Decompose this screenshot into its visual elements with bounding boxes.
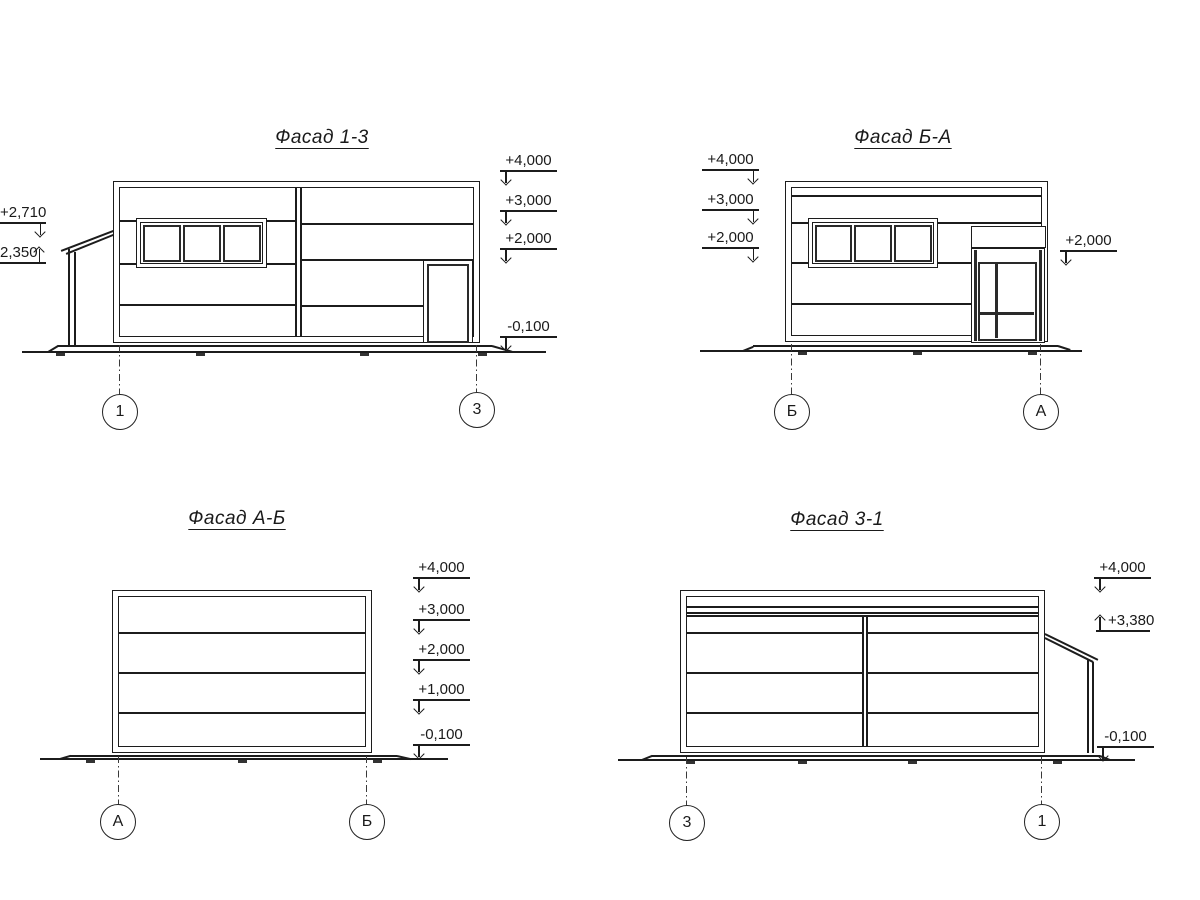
axis-label: А: [113, 813, 124, 831]
door-jamb: [1039, 250, 1042, 341]
panel-joint-line: [687, 632, 862, 634]
elevation-mark: +2,710: [0, 205, 46, 224]
panel-joint-vertical: [862, 615, 864, 747]
ground-hatch-tick: [238, 760, 247, 763]
panel-joint-vertical: [300, 187, 302, 337]
panel-joint-line: [119, 712, 365, 714]
elevation-mark: +4,000: [500, 153, 557, 172]
axis-bubble: 3: [459, 392, 495, 428]
ground-hatch-tick: [478, 353, 487, 356]
axis-label: А: [1036, 403, 1047, 421]
axis-line: [686, 757, 687, 805]
ground-hatch-tick: [86, 760, 95, 763]
elevation-mark: 2,350: [0, 245, 46, 264]
door-leaf-divider: [995, 264, 998, 338]
panel-joint-line: [301, 305, 423, 307]
elevation-mark: +4,000: [702, 152, 759, 171]
ground-hatch-tick: [798, 761, 807, 764]
facade-title: Фасад А-Б: [152, 508, 322, 530]
fascia-line: [687, 612, 1038, 614]
foundation-line: [58, 345, 492, 347]
ground-hatch-tick: [798, 352, 807, 355]
axis-label: 1: [116, 403, 125, 421]
window-pane: [854, 225, 892, 262]
ground-hatch-tick: [908, 761, 917, 764]
axis-line: [476, 345, 477, 392]
panel-joint-line: [301, 223, 473, 225]
annex-roof-slope: [61, 230, 114, 251]
ground-hatch-tick: [1028, 352, 1037, 355]
axis-bubble: 1: [102, 394, 138, 430]
elevation-drawing-sheet: Фасад 1-3: [0, 0, 1200, 900]
fascia-line: [687, 606, 1038, 608]
elevation-mark: +4,000: [413, 560, 470, 579]
axis-line: [1040, 344, 1041, 394]
annex-wall: [74, 252, 76, 345]
ground-hatch-tick: [913, 352, 922, 355]
foundation-line: [652, 755, 1100, 757]
panel-joint-line: [687, 712, 862, 714]
axis-label: 3: [683, 814, 692, 832]
elevation-mark: +2,000: [702, 230, 759, 249]
ground-line: [700, 350, 1082, 352]
axis-bubble: 1: [1024, 804, 1060, 840]
facade-title: Фасад 3-1: [752, 509, 922, 531]
fascia-line: [792, 195, 1041, 197]
ribbon-window: [136, 218, 267, 268]
door-mid-rail: [980, 312, 1034, 315]
panel-joint-vertical: [866, 615, 868, 747]
elevation-mark: +2,000: [500, 231, 557, 250]
panel-joint-line: [119, 632, 365, 634]
window-pane: [815, 225, 853, 262]
axis-bubble: А: [100, 804, 136, 840]
axis-line: [119, 345, 120, 394]
elevation-mark: +4,000: [1094, 560, 1151, 579]
elevation-mark: -0,100: [413, 727, 470, 746]
panel-joint-vertical: [295, 187, 297, 337]
annex-wall: [1092, 662, 1094, 753]
window-pane: [183, 225, 221, 262]
ground-hatch-tick: [1053, 761, 1062, 764]
window-pane: [223, 225, 261, 262]
door-jamb: [974, 250, 977, 341]
elevation-mark: +2,000: [413, 642, 470, 661]
elevation-mark: +3,380: [1096, 613, 1150, 632]
window-frame: [140, 222, 263, 264]
panel-joint-line: [792, 303, 972, 305]
axis-line: [791, 344, 792, 394]
panel-joint-line: [867, 672, 1038, 674]
elevation-mark: +2,000: [1060, 233, 1117, 252]
window-pane: [894, 225, 932, 262]
door-leaf: [427, 264, 469, 343]
facade-title: Фасад Б-А: [818, 127, 988, 149]
ground-line: [22, 351, 546, 353]
axis-bubble: Б: [349, 804, 385, 840]
window-pane: [143, 225, 181, 262]
axis-label: Б: [787, 403, 798, 421]
door-leaves: [978, 262, 1037, 341]
axis-label: 3: [473, 401, 482, 419]
ground-hatch-tick: [196, 353, 205, 356]
axis-bubble: Б: [774, 394, 810, 430]
panel-joint-line: [119, 672, 365, 674]
window-frame: [812, 222, 934, 264]
facade-title: Фасад 1-3: [237, 127, 407, 149]
axis-line: [118, 756, 119, 804]
panel-joint-line: [867, 632, 1038, 634]
elevation-mark: +1,000: [413, 682, 470, 701]
ribbon-window: [808, 218, 938, 268]
ground-hatch-tick: [360, 353, 369, 356]
elevation-mark: +3,000: [702, 192, 759, 211]
axis-bubble: 3: [669, 805, 705, 841]
axis-line: [1041, 757, 1042, 804]
elevation-mark: -0,100: [500, 319, 557, 338]
axis-line: [366, 756, 367, 804]
annex-roof-slope: [1045, 633, 1099, 660]
ground-hatch-tick: [373, 760, 382, 763]
axis-label: Б: [362, 813, 373, 831]
elevation-mark: +3,000: [413, 602, 470, 621]
panel-joint-line: [867, 712, 1038, 714]
axis-bubble: А: [1023, 394, 1059, 430]
elevation-mark: +3,000: [500, 193, 557, 212]
ground-hatch-tick: [686, 761, 695, 764]
annex-wall: [1087, 660, 1089, 753]
panel-joint-line: [120, 304, 295, 306]
ground-hatch-tick: [56, 353, 65, 356]
entrance-canopy: [971, 226, 1046, 248]
axis-label: 1: [1038, 813, 1047, 831]
panel-joint-line: [687, 672, 862, 674]
annex-roof-slope: [1045, 637, 1094, 662]
foundation-line: [753, 345, 1058, 347]
elevation-mark: -0,100: [1097, 729, 1154, 748]
annex-wall: [68, 249, 70, 345]
